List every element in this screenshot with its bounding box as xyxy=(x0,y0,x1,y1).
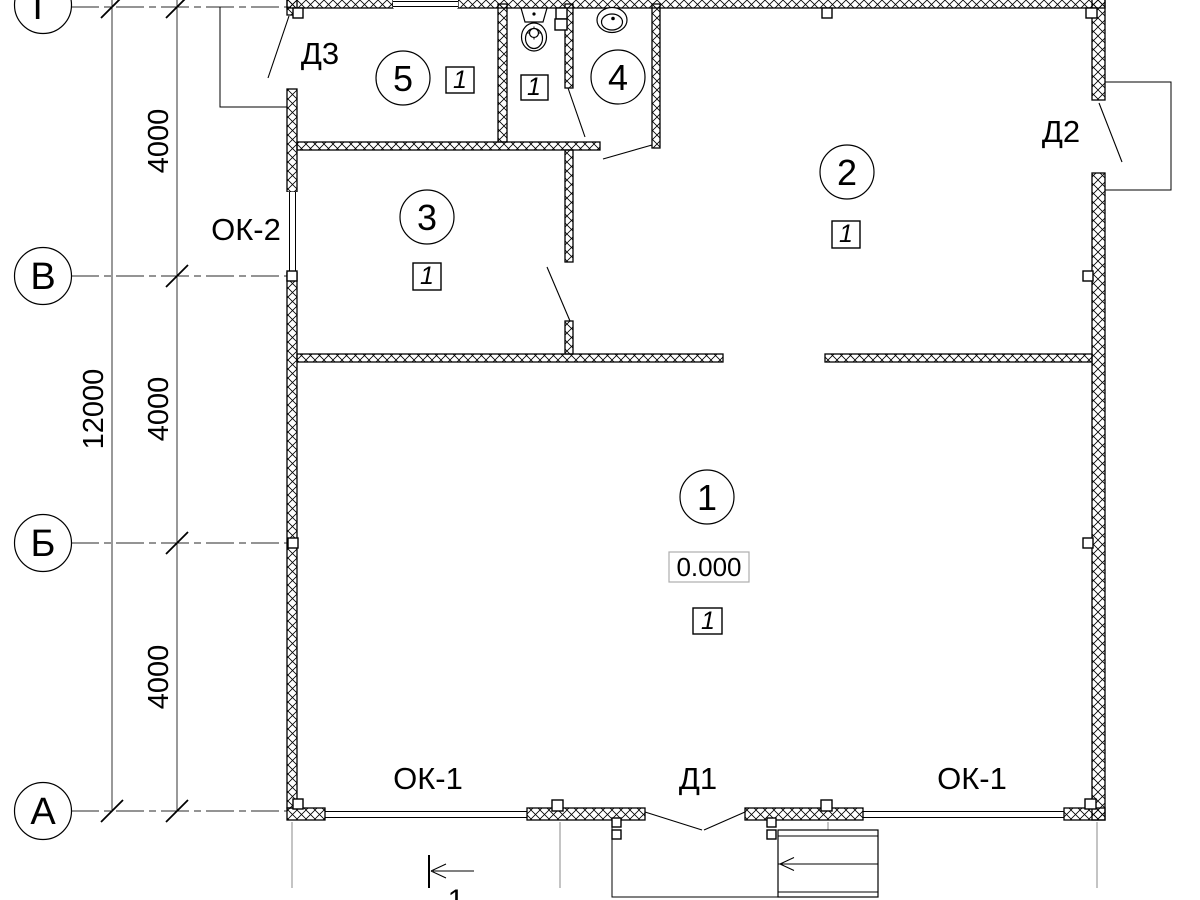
wall-tick xyxy=(288,538,298,548)
door-d2-label: Д2 xyxy=(1042,114,1080,149)
dim-overall: 12000 xyxy=(78,369,110,450)
elevation-value: 0.000 xyxy=(676,552,741,582)
room-3-floor-type: 1 xyxy=(420,262,434,290)
wall-left-upper xyxy=(287,89,297,192)
sink-icon xyxy=(597,8,627,33)
wall-room1-right xyxy=(825,354,1092,362)
door-d1-label: Д1 xyxy=(679,761,717,796)
vent-duct xyxy=(555,19,567,30)
wall-top-left xyxy=(287,0,393,8)
room-2-floor-type: 1 xyxy=(839,220,853,248)
door-d3-label: Д3 xyxy=(301,36,339,71)
axis-label-v: В xyxy=(30,256,55,298)
walls xyxy=(287,0,1105,820)
door-d1-frame-block xyxy=(767,830,776,839)
porch-outline xyxy=(612,822,778,897)
wall-tick xyxy=(1083,538,1093,548)
section-mark: 1 xyxy=(429,855,474,900)
door-room3-leaf xyxy=(547,267,570,321)
wall-tick xyxy=(293,8,303,18)
room-1-floor-type: 1 xyxy=(701,607,715,635)
room-5-floor-type: 1 xyxy=(453,66,467,94)
wall-tick xyxy=(287,271,297,281)
window-ok1-left-label: ОК-1 xyxy=(393,761,463,796)
wall-tick xyxy=(1085,799,1096,809)
wall-room5-room3 xyxy=(297,142,600,150)
door-d1-frame-block xyxy=(612,818,621,827)
wall-bottom-3 xyxy=(745,808,863,820)
wc-floor-type: 1 xyxy=(527,73,541,101)
door-d2-leaf xyxy=(1099,103,1122,162)
wall-top-right xyxy=(458,0,1105,8)
axis-label-b: Б xyxy=(31,523,56,565)
door-d1-leaf-right xyxy=(704,812,745,830)
door-room4-leaf xyxy=(603,145,652,159)
window-ok2-opening xyxy=(286,192,298,272)
door-d3-leaf xyxy=(268,16,289,78)
wall-tick xyxy=(293,799,303,809)
stairs-porch xyxy=(612,822,878,897)
wall-tick xyxy=(821,800,832,811)
floor-plan-drawing: Г В Б А 4000 4000 4000 12000 xyxy=(0,0,1200,900)
window-ok1-right-label: ОК-1 xyxy=(937,761,1007,796)
wall-tick xyxy=(1086,8,1097,18)
wall-tick xyxy=(822,8,832,18)
wall-tick xyxy=(552,800,563,811)
door-wc-leaf xyxy=(568,88,585,137)
room-2-number: 2 xyxy=(837,152,857,193)
room-4-number: 4 xyxy=(608,57,628,98)
toilet-icon xyxy=(521,8,547,51)
doors xyxy=(220,7,1171,839)
sink-inner xyxy=(602,14,623,30)
wall-bottom-2 xyxy=(527,808,645,820)
door-d3-porch xyxy=(220,7,287,107)
fixtures xyxy=(521,8,627,52)
floor-plan-canvas: Г В Б А 4000 4000 4000 12000 xyxy=(0,0,1200,900)
toilet-drain xyxy=(530,29,539,38)
axis-label-a: А xyxy=(30,791,56,833)
dim-bay-bottom: 4000 xyxy=(143,645,175,710)
partition-room4-room2 xyxy=(652,4,660,148)
door-d2-porch xyxy=(1105,82,1171,190)
partition-room3-lower xyxy=(565,321,573,354)
sink-faucet-dot xyxy=(611,17,615,21)
room-3-number: 3 xyxy=(417,197,437,238)
dimension-lines: 4000 4000 4000 12000 xyxy=(78,0,188,822)
partition-room5-wc xyxy=(498,4,507,142)
wall-right-lower xyxy=(1092,173,1105,820)
wall-tick xyxy=(1083,271,1093,281)
dim-bay-top: 4000 xyxy=(143,109,175,174)
windows xyxy=(286,0,1064,818)
section-number: 1 xyxy=(448,884,465,900)
wall-room1-left xyxy=(297,354,723,362)
partition-room3-upper xyxy=(565,150,573,262)
toilet-tank-dot xyxy=(532,12,535,15)
dim-bay-middle: 4000 xyxy=(143,377,175,442)
door-d1-frame-block xyxy=(612,830,621,839)
wall-bottom-1 xyxy=(287,808,325,820)
wall-tick xyxy=(556,8,567,19)
axis-label-g: Г xyxy=(33,0,54,28)
room-1-number: 1 xyxy=(697,477,717,518)
room-5-number: 5 xyxy=(393,58,413,99)
window-ok2-label: ОК-2 xyxy=(211,212,281,247)
door-d1-frame-block xyxy=(767,818,776,827)
room-labels: 1 0.000 1 2 1 3 1 4 5 1 1 xyxy=(376,50,874,635)
door-d1-leaf-left xyxy=(645,812,702,830)
wall-bottom-4 xyxy=(1064,808,1105,820)
axis-wall-ticks xyxy=(287,8,1097,811)
